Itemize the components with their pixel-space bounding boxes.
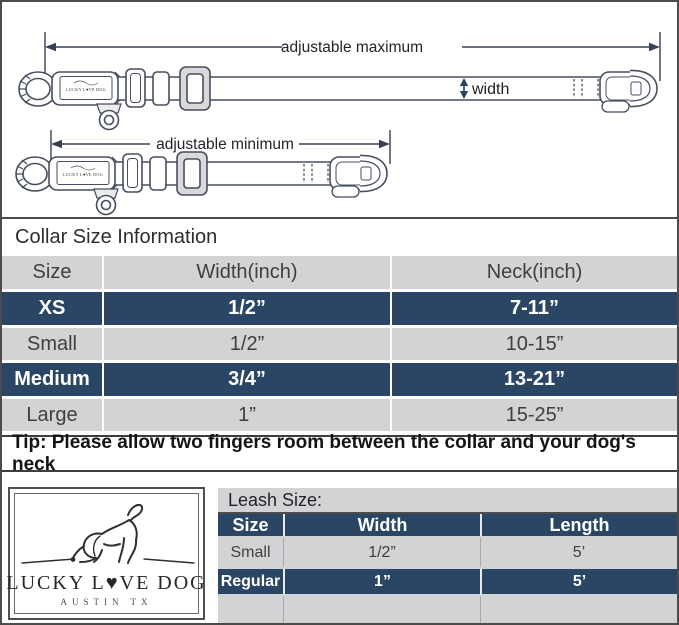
cell-length: 5’ bbox=[480, 538, 677, 567]
header-width: Width(inch) bbox=[102, 256, 390, 289]
brand-logo-inner: LUCKY L♥VE DOG AUSTIN TX bbox=[14, 493, 199, 614]
dog-belly bbox=[104, 544, 120, 546]
cell-neck: 10-15” bbox=[390, 328, 677, 360]
cell-size: Small bbox=[2, 328, 102, 360]
leash-row-regular: Regular 1” 5’ bbox=[218, 569, 677, 594]
header-size: Size bbox=[218, 514, 283, 536]
collar-size-title: Collar Size Information bbox=[2, 219, 677, 256]
collar-table-header-row: Size Width(inch) Neck(inch) bbox=[2, 256, 677, 289]
cell-size: Medium bbox=[2, 363, 102, 396]
brand-logo-box: LUCKY L♥VE DOG AUSTIN TX bbox=[8, 487, 205, 620]
table-row-large: Large 1” 15-25” bbox=[2, 399, 677, 431]
cell-width: 3/4” bbox=[102, 363, 390, 396]
cell-width: 1/2” bbox=[102, 292, 390, 325]
leash-row-small: Small 1/2” 5’ bbox=[218, 538, 677, 567]
table-row-medium: Medium 3/4” 13-21” bbox=[2, 363, 677, 396]
collar-diagram-svg: adjustable maximum LUCKY L♥VE DOG width bbox=[2, 2, 677, 217]
brand-name: LUCKY L♥VE DOG bbox=[6, 573, 206, 594]
collar-drawing-max: LUCKY L♥VE DOG bbox=[19, 67, 657, 130]
dog-back bbox=[102, 520, 129, 534]
header-width: Width bbox=[283, 514, 480, 536]
buckle-brand-label: LUCKY L♥VE DOG bbox=[66, 87, 106, 92]
cell-size: XS bbox=[2, 292, 102, 325]
dog-logo-drawing bbox=[16, 501, 198, 573]
dog-nose bbox=[71, 558, 74, 561]
cell-neck: 13-21” bbox=[390, 363, 677, 396]
logo-right-line bbox=[144, 559, 194, 563]
brand-city: AUSTIN TX bbox=[60, 597, 152, 607]
arrow-right-icon bbox=[379, 140, 390, 149]
arrow-down-icon bbox=[460, 91, 468, 99]
dog-hind-leg bbox=[128, 540, 136, 563]
cell-size: Small bbox=[218, 538, 283, 567]
collar-tip-note: Tip: Please allow two fingers room betwe… bbox=[2, 435, 677, 472]
cell-length: 5’ bbox=[480, 569, 677, 594]
header-length: Length bbox=[480, 514, 677, 536]
cell-size: Regular bbox=[218, 569, 283, 594]
arrow-right-icon bbox=[649, 43, 660, 52]
leash-size-title: Leash Size: bbox=[218, 488, 677, 514]
width-annotation: width bbox=[460, 78, 510, 99]
table-row-small: Small 1/2” 10-15” bbox=[2, 328, 677, 360]
cell-width: 1” bbox=[102, 399, 390, 431]
dog-tail bbox=[128, 505, 142, 520]
cell-width: 1/2” bbox=[283, 538, 480, 567]
cell-neck: 15-25” bbox=[390, 399, 677, 431]
leash-table-header-row: Size Width Length bbox=[218, 514, 677, 536]
buckle-brand-label: LUCKY L♥VE DOG bbox=[63, 172, 103, 177]
cell-size: Large bbox=[2, 399, 102, 431]
leash-row-empty bbox=[218, 596, 677, 623]
header-neck: Neck(inch) bbox=[390, 256, 677, 289]
adjustable-maximum-label: adjustable maximum bbox=[281, 39, 423, 56]
adjustable-minimum-label: adjustable minimum bbox=[156, 136, 294, 153]
cell-neck: 7-11” bbox=[390, 292, 677, 325]
leash-size-table: Leash Size: Size Width Length Small 1/2”… bbox=[218, 488, 677, 623]
table-row-xs: XS 1/2” 7-11” bbox=[2, 292, 677, 325]
collar-diagram-section: adjustable maximum LUCKY L♥VE DOG width bbox=[2, 2, 677, 219]
collar-drawing-min: LUCKY L♥VE DOG bbox=[16, 152, 387, 215]
cell-width: 1/2” bbox=[102, 328, 390, 360]
arrow-left-icon bbox=[45, 43, 56, 52]
collar-size-chart-image: adjustable maximum LUCKY L♥VE DOG width bbox=[0, 0, 679, 625]
collar-size-table: Size Width(inch) Neck(inch) XS 1/2” 7-11… bbox=[2, 256, 677, 434]
arrow-left-icon bbox=[51, 140, 62, 149]
cell-width: 1” bbox=[283, 569, 480, 594]
logo-left-line bbox=[22, 559, 74, 563]
width-label: width bbox=[471, 81, 509, 98]
header-size: Size bbox=[2, 256, 102, 289]
dog-ear bbox=[93, 536, 99, 556]
arrow-up-icon bbox=[460, 78, 468, 86]
